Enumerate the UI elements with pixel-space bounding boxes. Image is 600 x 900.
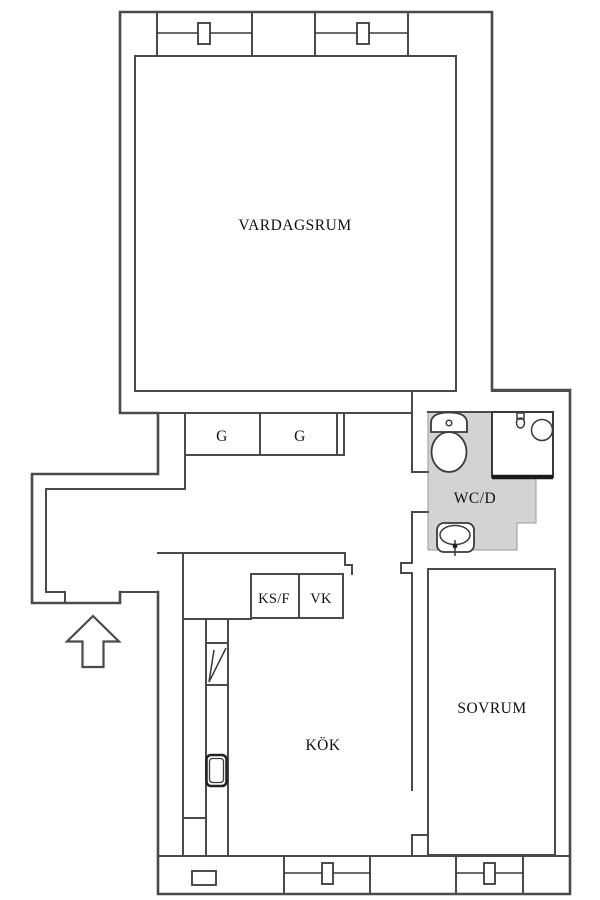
label-wardrobe-1: G: [216, 428, 228, 445]
window-mullion-icon: [198, 23, 210, 44]
window-mullion-icon: [484, 863, 495, 884]
label-closet-ksf: KS/F: [258, 591, 290, 607]
top-windows: [157, 23, 408, 44]
label-bathroom: WC/D: [454, 490, 496, 507]
toilet-tank-icon: [431, 413, 467, 433]
label-closet-vk: VK: [310, 591, 332, 607]
floor-plan-svg: VARDAGSRUM G G WC/D KS/F VK KÖK SOVRUM: [0, 0, 600, 900]
entry-arrow-icon: [67, 616, 119, 667]
wardrobes: [185, 413, 344, 455]
label-bedroom: SOVRUM: [457, 700, 526, 717]
window-mullion-icon: [357, 23, 369, 44]
floor-plan-page: VARDAGSRUM G G WC/D KS/F VK KÖK SOVRUM: [0, 0, 600, 900]
window-mullion-icon: [322, 863, 333, 884]
label-living-room: VARDAGSRUM: [238, 217, 351, 234]
bottom-windows: [192, 855, 523, 893]
toilet-bowl-icon: [432, 432, 467, 472]
shower-enclosure-icon: [492, 412, 553, 477]
sink-tap-dot: [453, 544, 458, 549]
appliance-mark-icon: [209, 648, 226, 682]
wall-vent-icon: [192, 871, 216, 885]
counter-lines: [183, 619, 228, 856]
label-wardrobe-2: G: [294, 428, 306, 445]
label-kitchen: KÖK: [305, 737, 340, 754]
wardrobe-box: [185, 413, 344, 455]
kitchen-counter: [183, 619, 228, 856]
